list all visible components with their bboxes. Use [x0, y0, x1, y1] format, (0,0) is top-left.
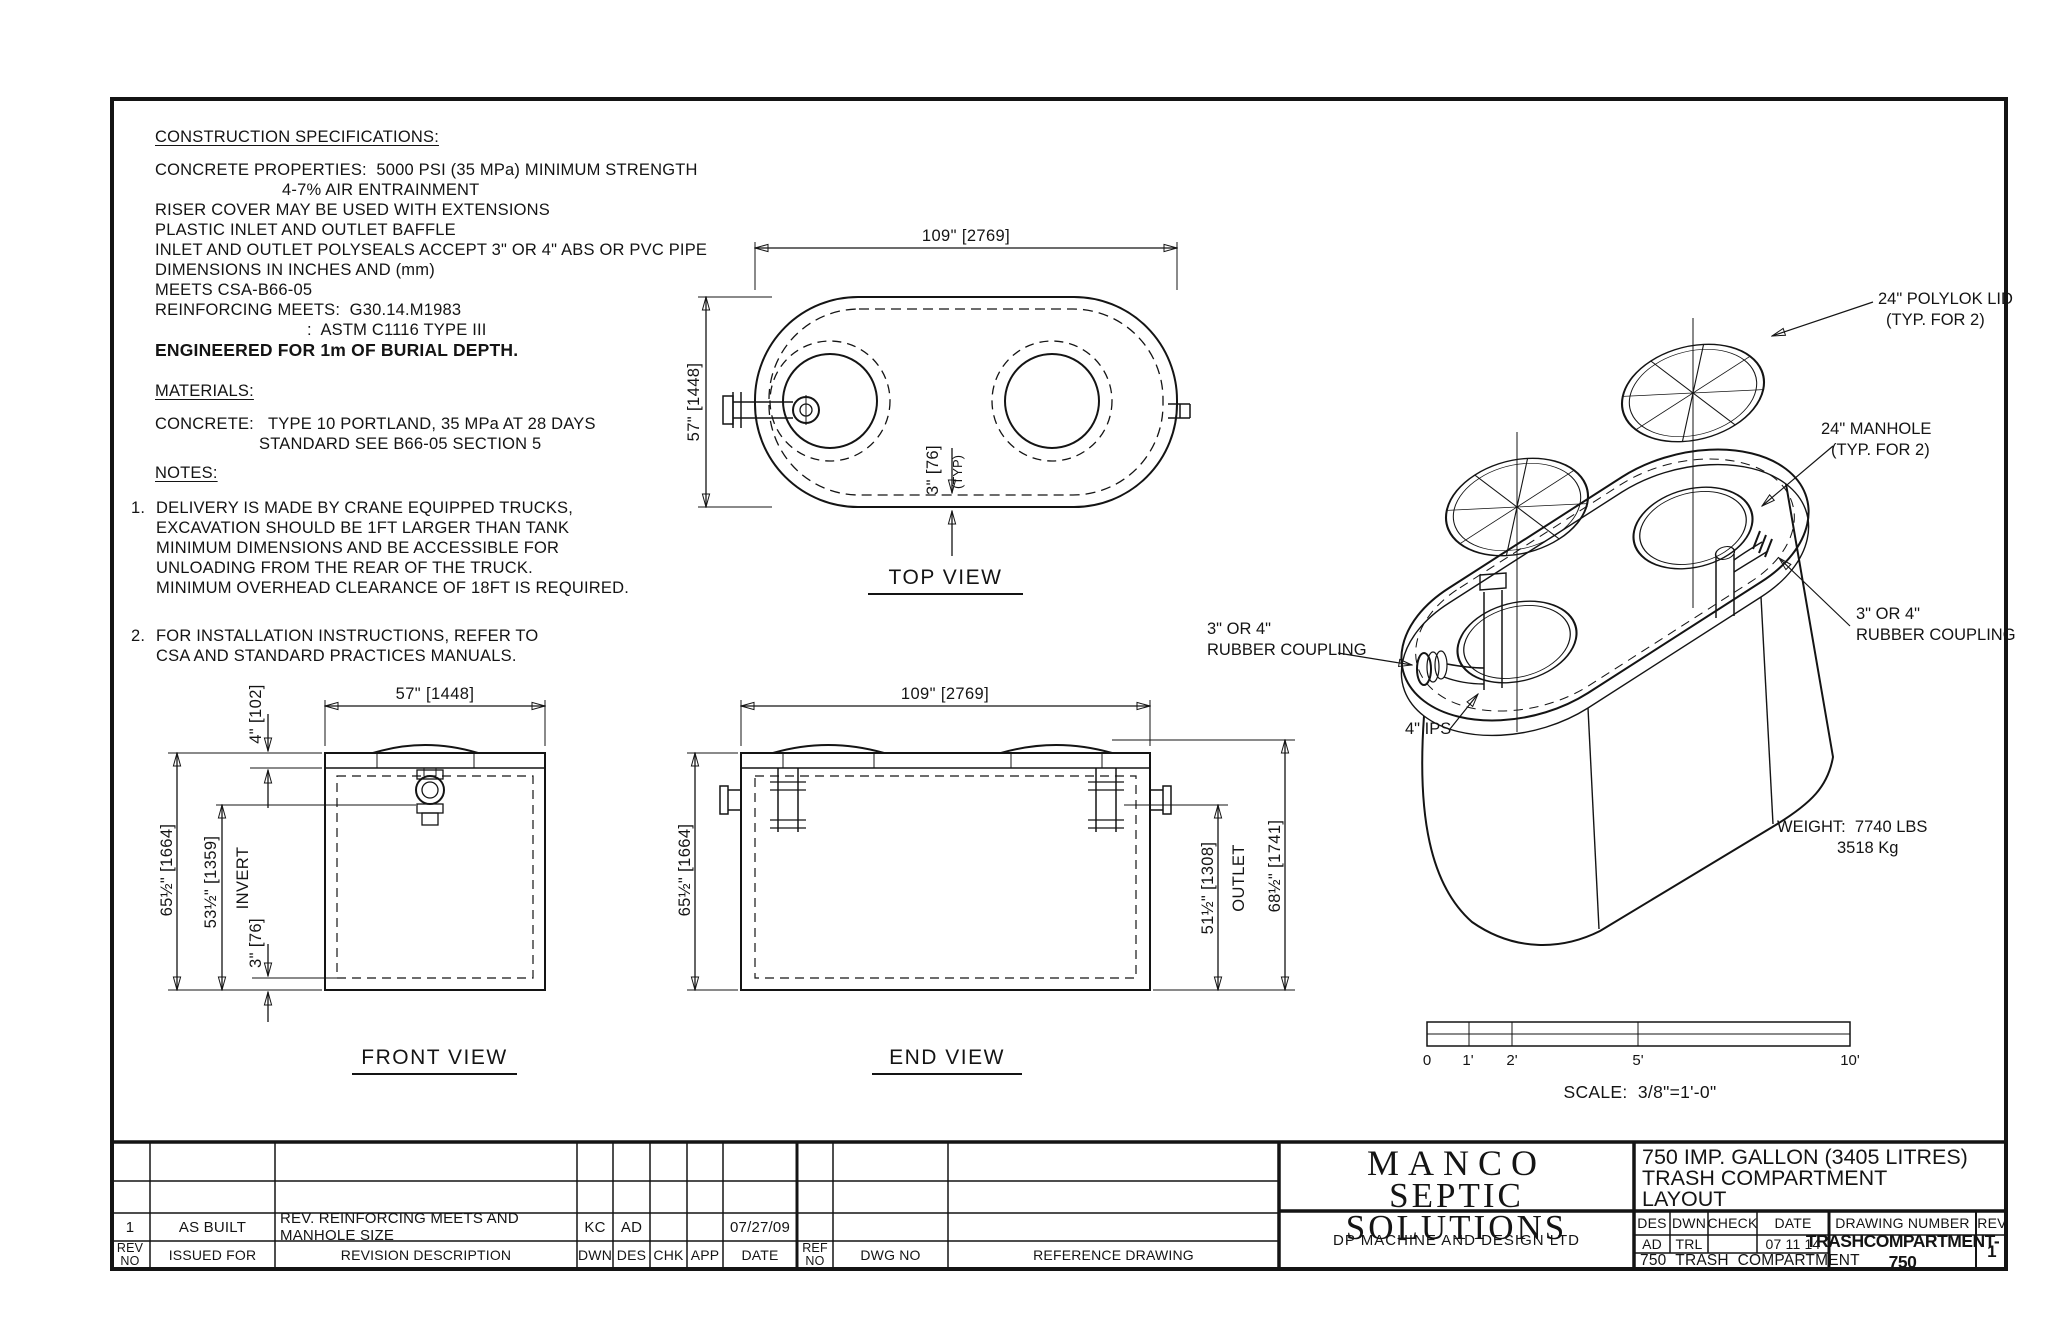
issued-for-value: AS BUILT — [150, 1213, 275, 1241]
tb-dwn-value: TRL — [1670, 1235, 1708, 1253]
title-line: TRASH COMPARTMENT — [1642, 1168, 2004, 1189]
front-dim-floor: 3" [76] — [247, 918, 265, 968]
note-line: CSA AND STANDARD PRACTICES MANUALS. — [156, 646, 538, 666]
tb-check-value — [1708, 1235, 1757, 1253]
top-dim-wall-typ: (TYP) — [950, 455, 965, 489]
tb-dwn-header: DWN — [1670, 1211, 1708, 1235]
drawing-title: 750 IMP. GALLON (3405 LITRES) TRASH COMP… — [1642, 1147, 2004, 1210]
chk-header: CHK — [650, 1241, 687, 1269]
revision-description-header: REVISION DESCRIPTION — [275, 1241, 577, 1269]
note-line: MINIMUM OVERHEAD CLEARANCE OF 18FT IS RE… — [156, 578, 629, 598]
materials-section: MATERIALS: CONCRETE: TYPE 10 PORTLAND, 3… — [155, 381, 596, 454]
note-line: FOR INSTALLATION INSTRUCTIONS, REFER TO — [156, 626, 538, 646]
ref-no-header: REF NO — [797, 1241, 833, 1269]
note-item-2: 2. FOR INSTALLATION INSTRUCTIONS, REFER … — [131, 626, 601, 666]
front-dim-width: 57" [1448] — [396, 685, 475, 703]
note-line: MINIMUM DIMENSIONS AND BE ACCESSIBLE FOR — [156, 538, 629, 558]
dwn-header: DWN — [577, 1241, 613, 1269]
top-dim-wall: 3" [76] — [924, 445, 942, 495]
scale-text: SCALE: 3/8"=1'-0" — [1520, 1082, 1760, 1103]
top-view-title: TOP VIEW — [868, 566, 1023, 595]
tb-des-header: DES — [1634, 1211, 1670, 1235]
polylok-lid-right — [1594, 318, 1793, 608]
end-dim-width: 109" [2769] — [901, 685, 989, 703]
label-line: 3518 Kg — [1777, 838, 1927, 859]
end-dim-outlet: 51½" [1308] — [1199, 842, 1217, 935]
spec-line: PLASTIC INLET AND OUTLET BAFFLE — [155, 220, 707, 240]
revision-description-value: REV. REINFORCING MEETS AND MANHOLE SIZE — [280, 1213, 575, 1241]
app-header: APP — [687, 1241, 723, 1269]
end-view-dimensions: 109" [2769] 65½" [1664] 51½" [1308] OUTL… — [676, 685, 1295, 990]
end-dim-overall: 68½" [1741] — [1266, 820, 1284, 913]
note-item-1: 1. DELIVERY IS MADE BY CRANE EQUIPPED TR… — [131, 498, 601, 598]
des-header: DES — [613, 1241, 650, 1269]
rubber-coupling-label-right: 3" OR 4" RUBBER COUPLING — [1856, 604, 2016, 646]
front-view-dimensions: 57" [1448] 4" [102] 65½" [1664] 53½" [13… — [158, 684, 545, 1022]
end-view-title: END VIEW — [872, 1046, 1022, 1075]
label-line: RUBBER COUPLING — [1856, 625, 2016, 646]
scale-tick-0: 0 — [1417, 1052, 1437, 1069]
date-header: DATE — [723, 1241, 797, 1269]
notes-section: NOTES: 1. DELIVERY IS MADE BY CRANE EQUI… — [131, 463, 601, 666]
notes-heading: NOTES: — [155, 463, 601, 483]
front-dim-invert: 53½" [1359] — [202, 836, 220, 929]
dwg-no-header: DWG NO — [833, 1241, 948, 1269]
reference-drawing-header: REFERENCE DRAWING — [948, 1241, 1279, 1269]
label-line: (TYP. FOR 2) — [1878, 310, 2013, 331]
scale-bar — [1427, 1022, 1850, 1046]
label-line: 3" OR 4" — [1856, 604, 2016, 625]
spec-line: CONCRETE PROPERTIES: 5000 PSI (35 MPa) M… — [155, 160, 707, 180]
rev-dwn-value: KC — [577, 1213, 613, 1241]
note-line: EXCAVATION SHOULD BE 1FT LARGER THAN TAN… — [156, 518, 629, 538]
tb-filename: 750_TRASH_COMPARTMENT — [1640, 1253, 1829, 1269]
spec-line-burial-depth: ENGINEERED FOR 1m OF BURIAL DEPTH. — [155, 340, 707, 360]
title-line: 750 IMP. GALLON (3405 LITRES) — [1642, 1147, 2004, 1168]
specs-heading: CONSTRUCTION SPECIFICATIONS: — [155, 127, 707, 147]
label-line: (TYP. FOR 2) — [1821, 440, 1931, 461]
scale-tick-2: 2' — [1500, 1052, 1524, 1069]
top-dim-height: 57" [1448] — [685, 363, 703, 442]
materials-heading: MATERIALS: — [155, 381, 596, 401]
manhole-label: 24" MANHOLE (TYP. FOR 2) — [1821, 419, 1931, 461]
drawing-sheet: 109" [2769] 57" [1448] 3" [76] (TYP) — [0, 0, 2048, 1325]
end-dim-height: 65½" [1664] — [676, 824, 694, 917]
top-dim-width: 109" [2769] — [922, 227, 1010, 245]
polylok-lid-label: 24" POLYLOK LID (TYP. FOR 2) — [1878, 289, 2013, 331]
rev-app-value — [687, 1213, 723, 1241]
spec-line: DIMENSIONS IN INCHES AND (mm) — [155, 260, 707, 280]
weight-label: WEIGHT: 7740 LBS 3518 Kg — [1777, 817, 1927, 859]
firm-name: DP MACHINE AND DESIGN LTD — [1279, 1211, 1634, 1269]
materials-line: STANDARD SEE B66-05 SECTION 5 — [155, 434, 596, 454]
scale-tick-5: 5' — [1626, 1052, 1650, 1069]
polylok-lid-left — [1418, 432, 1617, 732]
tb-rev-header: REV — [1976, 1211, 2008, 1235]
tb-check-header: CHECK — [1708, 1211, 1757, 1235]
note-number: 2. — [131, 626, 156, 666]
scale-tick-1: 1' — [1458, 1052, 1478, 1069]
rev-des-value: AD — [613, 1213, 650, 1241]
rev-date-value: 07/27/09 — [723, 1213, 797, 1241]
title-line: LAYOUT — [1642, 1189, 2004, 1210]
rev-chk-value — [650, 1213, 687, 1241]
drawing-number-value: TRASHCOMPARTMENT-750 — [1829, 1235, 1976, 1269]
front-dim-slab: 4" [102] — [247, 684, 265, 744]
spec-line: : ASTM C1116 TYPE III — [155, 320, 707, 340]
label-line: 24" MANHOLE — [1821, 419, 1931, 440]
note-number: 1. — [131, 498, 156, 598]
rev-no-value: 1 — [110, 1213, 150, 1241]
tb-des-value: AD — [1634, 1235, 1670, 1253]
label-line: RUBBER COUPLING — [1207, 640, 1367, 661]
tb-rev-value: 1 — [1976, 1235, 2008, 1269]
construction-specifications: CONSTRUCTION SPECIFICATIONS: CONCRETE PR… — [155, 127, 707, 360]
rev-no-header: REV NO — [110, 1241, 150, 1269]
label-line: 3" OR 4" — [1207, 619, 1367, 640]
materials-line: CONCRETE: TYPE 10 PORTLAND, 35 MPa AT 28… — [155, 414, 596, 434]
spec-line: MEETS CSA-B66-05 — [155, 280, 707, 300]
front-view-title: FRONT VIEW — [352, 1046, 517, 1075]
front-view-linework — [325, 745, 545, 990]
company-line: MANCO — [1279, 1146, 1634, 1180]
header-line: NO — [120, 1255, 139, 1268]
ips-label: 4" IPS — [1405, 719, 1451, 740]
label-line: 24" POLYLOK LID — [1878, 289, 2013, 310]
scale-tick-10: 10' — [1834, 1052, 1866, 1069]
spec-line: REINFORCING MEETS: G30.14.M1983 — [155, 300, 707, 320]
front-invert-label: INVERT — [234, 847, 252, 910]
spec-line: INLET AND OUTLET POLYSEALS ACCEPT 3" OR … — [155, 240, 707, 260]
spec-line: 4-7% AIR ENTRAINMENT — [155, 180, 707, 200]
note-line: DELIVERY IS MADE BY CRANE EQUIPPED TRUCK… — [156, 498, 629, 518]
label-line: WEIGHT: 7740 LBS — [1777, 817, 1927, 838]
end-view-linework — [720, 745, 1171, 990]
rubber-coupling-label-left: 3" OR 4" RUBBER COUPLING — [1207, 619, 1367, 661]
spec-line: RISER COVER MAY BE USED WITH EXTENSIONS — [155, 200, 707, 220]
header-line: NO — [805, 1255, 824, 1268]
end-outlet-label: OUTLET — [1230, 844, 1248, 912]
note-line: UNLOADING FROM THE REAR OF THE TRUCK. — [156, 558, 629, 578]
front-dim-height: 65½" [1664] — [158, 824, 176, 917]
issued-for-header: ISSUED FOR — [150, 1241, 275, 1269]
